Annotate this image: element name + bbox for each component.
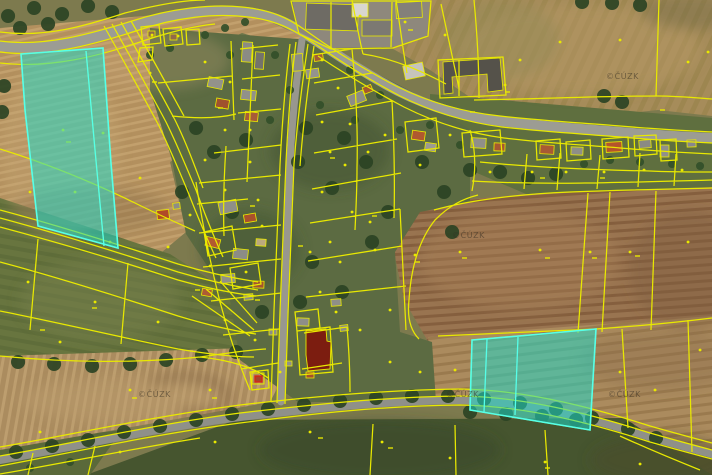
cuzk-watermark: ©ČÚZK [606, 70, 639, 81]
map-canvas[interactable]: ©ČÚZK ©ČÚZK ©ČÚZK ©ČÚZK ©ČÚZK [0, 0, 712, 475]
cuzk-watermark: ©ČÚZK [608, 388, 641, 399]
cuzk-watermark: ©ČÚZK [452, 229, 485, 240]
cuzk-watermark: ©ČÚZK [138, 388, 171, 399]
cuzk-watermark: ©ČÚZK [446, 388, 479, 399]
